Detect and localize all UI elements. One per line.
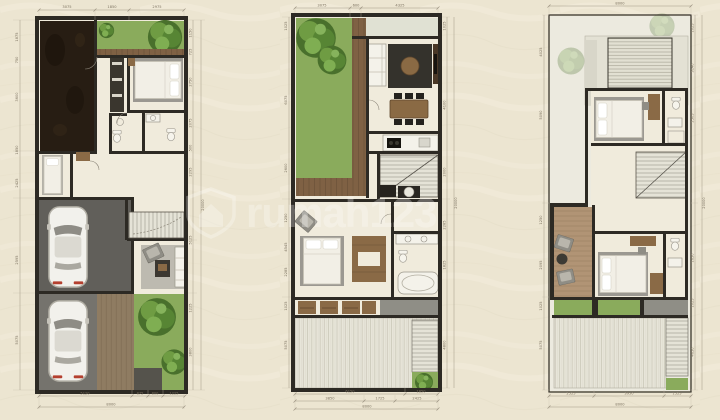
dim-label: 2750 — [189, 77, 193, 87]
burner — [389, 141, 393, 145]
tree-icon — [148, 20, 182, 54]
dim-label: 1650 — [691, 253, 695, 263]
toilet-icon — [399, 250, 407, 262]
dim-label: 3800 — [189, 347, 193, 357]
dim-label: 800 — [152, 392, 160, 396]
dining-table — [390, 100, 428, 118]
floorplan-sheet: 3075 1850 2975 5120 875 800 1225 8000 18… — [0, 0, 720, 420]
dim-label: 2525 — [566, 392, 575, 396]
desk — [630, 236, 656, 246]
dim-label: 1225 — [189, 303, 193, 312]
chair-icon — [416, 93, 424, 99]
dim-label: 1025 — [443, 21, 447, 30]
faded-tree-icon — [649, 13, 674, 38]
car-icon — [47, 301, 89, 381]
outdoor-stair — [412, 320, 438, 372]
chair-icon — [394, 119, 402, 125]
wardrobe-shelf — [112, 78, 122, 81]
dim-label: 1825 — [443, 260, 447, 269]
chair-icon — [394, 93, 402, 99]
dim-label: 750 — [15, 56, 19, 64]
toilet-icon — [671, 238, 679, 250]
dim-label: 2975 — [152, 5, 161, 9]
toilet-icon — [167, 129, 175, 141]
tv-icon — [434, 54, 437, 74]
chair-icon — [405, 119, 413, 125]
dim-label: 20000 — [201, 199, 205, 211]
dim-label: 4800 — [443, 340, 447, 350]
dark-soil-area — [40, 21, 94, 151]
desk-chair — [638, 247, 646, 254]
dim-label: 8000 — [615, 403, 625, 407]
dim-label: 5125 — [189, 235, 193, 244]
dim-label: 1875 — [15, 32, 19, 41]
side-table — [557, 254, 568, 265]
single-bed-icon — [42, 155, 63, 195]
dim-label: 3950 — [624, 392, 634, 396]
front-garden — [97, 20, 184, 57]
dim-label: 2095 — [539, 260, 543, 269]
wardrobe-shelf — [112, 62, 122, 65]
desk-chair — [642, 102, 649, 110]
carport — [39, 200, 134, 390]
dim-label: 5120 — [80, 392, 90, 396]
floorplan-svg: 3075 1850 2975 5120 875 800 1225 8000 18… — [0, 0, 720, 420]
dim-label: 1850 — [416, 390, 426, 394]
dim-label: 1525 — [672, 392, 681, 396]
side-garden — [296, 18, 366, 196]
balcony-slab — [380, 300, 438, 315]
dim-label: 5075 — [539, 340, 543, 349]
dim-label: 8000 — [106, 403, 116, 407]
wardrobe — [650, 273, 663, 294]
sink-icon — [419, 138, 430, 147]
sink-icon — [668, 258, 682, 267]
dim-label: 20000 — [702, 197, 706, 209]
wood-deck — [352, 18, 366, 196]
dim-label: 6075 — [284, 95, 288, 104]
dim-label: 2505 — [691, 113, 695, 122]
dim-label: 3075 — [62, 5, 71, 9]
dim-label: 3850 — [325, 397, 335, 401]
dim-label: 1225 — [169, 392, 178, 396]
dim-label: 1725 — [375, 397, 384, 401]
dim-label: 4100 — [443, 100, 447, 110]
living-room-1 — [141, 242, 186, 289]
dim-label: 1025 — [284, 21, 288, 30]
dim-label: 3600 — [15, 92, 19, 102]
desk-nook — [358, 252, 380, 266]
walk-in-closet — [298, 301, 376, 314]
roof-deck-2 — [295, 318, 438, 391]
chair-icon — [416, 119, 424, 125]
utility-pad — [134, 368, 162, 390]
watermark-text: rumah123 — [246, 189, 436, 236]
family-room — [554, 207, 592, 298]
dim-label: 1250 — [539, 215, 543, 225]
dim-label: 1025 — [691, 298, 695, 307]
dim-label: 4650 — [691, 347, 695, 357]
car-icon — [47, 207, 89, 287]
floor-plan-1: 3075 1850 2975 5120 875 800 1225 8000 18… — [13, 5, 205, 409]
dim-label: 2295 — [189, 167, 193, 176]
desk — [648, 94, 660, 120]
faded-tree-icon — [558, 48, 585, 75]
louver-roof — [608, 38, 672, 88]
dim-label: 3140 — [691, 63, 695, 73]
dim-label: 5075 — [15, 335, 19, 344]
dim-label: 2285 — [443, 220, 447, 229]
coffee-table-tray — [158, 264, 167, 271]
tree-icon — [138, 298, 176, 336]
garden-patch — [666, 378, 688, 390]
dim-label: 2285 — [284, 267, 288, 276]
rear-garden-strip — [554, 300, 688, 316]
dim-label: 4545 — [284, 242, 288, 251]
dining-area — [390, 93, 428, 125]
dim-label: 500 — [189, 144, 193, 152]
sink-icon — [668, 118, 682, 127]
dim-label: 875 — [137, 392, 144, 396]
dim-label: 8000 — [615, 2, 625, 6]
tree-icon — [318, 46, 347, 75]
door-mat — [76, 152, 90, 161]
dim-label: 4325 — [395, 4, 404, 8]
dim-label: 2075 — [189, 118, 193, 127]
shrub-icon — [99, 23, 114, 38]
nightstand — [128, 58, 135, 66]
toilet-icon — [672, 97, 680, 109]
wardrobe-shelf — [112, 94, 122, 97]
outdoor-stair — [666, 318, 688, 376]
paver-driveway — [97, 294, 134, 390]
dim-label: 725 — [189, 49, 193, 56]
toilet-icon — [113, 130, 121, 142]
kitchen — [383, 135, 438, 151]
sofa-icon — [368, 44, 386, 86]
dim-label: 1025 — [539, 301, 543, 310]
tree-icon — [161, 349, 186, 374]
chair-icon — [405, 93, 413, 99]
round-coffee-table — [401, 57, 419, 75]
dim-label: 20000 — [454, 197, 458, 209]
roof-deck-3 — [554, 318, 688, 390]
hall-wardrobe — [110, 58, 124, 112]
burner — [395, 141, 399, 145]
dim-label: 1025 — [284, 301, 288, 310]
dim-label: 2600 — [284, 163, 288, 173]
staircase-1 — [129, 212, 184, 238]
dim-label: 2425 — [412, 397, 421, 401]
dim-label: 2425 — [15, 178, 19, 187]
dim-label: 1850 — [15, 145, 19, 155]
dim-label: 8000 — [362, 405, 372, 409]
double-bed-icon — [594, 97, 644, 141]
dim-label: 1025 — [691, 23, 695, 32]
dim-label: 1850 — [107, 5, 117, 9]
dim-label: 2000 — [443, 167, 447, 177]
dim-label: 5090 — [539, 110, 543, 120]
double-bed-icon — [598, 252, 648, 296]
living-room-2 — [368, 44, 438, 88]
dim-label: 600 — [353, 4, 361, 8]
dim-label: 6150 — [345, 390, 355, 394]
dim-label: 3075 — [317, 4, 326, 8]
dim-label: 2595 — [15, 255, 19, 264]
double-bed-icon — [300, 236, 344, 286]
dim-label: 4025 — [539, 47, 543, 56]
dim-label: 1150 — [189, 28, 193, 38]
floor-plan-3: 8000 2525 3950 1525 8000 4025 5090 1250 … — [539, 2, 706, 410]
dim-label: 5075 — [284, 340, 288, 349]
double-bed-icon — [133, 58, 183, 102]
rear-garden — [134, 294, 187, 390]
staircase-3 — [636, 152, 686, 198]
